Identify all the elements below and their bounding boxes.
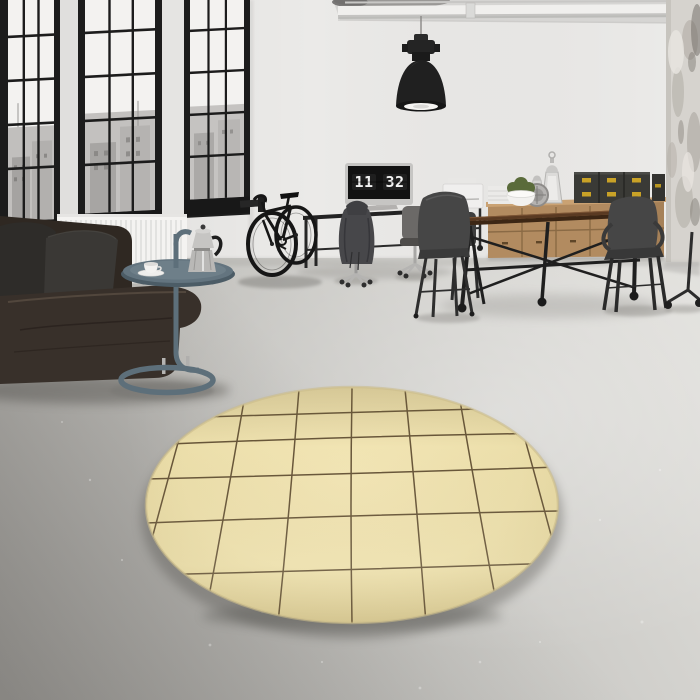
bike-shadow — [238, 276, 322, 289]
chair-back — [608, 196, 658, 252]
rack-caster — [664, 301, 672, 309]
loft-room-photo: 11 32 — [0, 0, 700, 700]
cup-rim — [144, 262, 158, 266]
caster-wheel — [428, 271, 433, 276]
caster-wheel — [362, 283, 367, 288]
window-left — [0, 0, 60, 238]
trunk-top-edge — [574, 172, 650, 175]
distressed-column — [660, 0, 700, 276]
bike-hub — [270, 242, 274, 246]
lamp-neck — [412, 52, 430, 61]
window-city-view — [190, 104, 244, 200]
lamp-bulb — [413, 105, 429, 109]
ceiling — [332, 0, 700, 24]
caster-wheel — [346, 283, 351, 288]
table-caster — [458, 304, 467, 313]
moka-knob — [201, 225, 206, 230]
moka-base — [188, 250, 216, 272]
pipe-coupler — [466, 3, 475, 18]
table-caster — [538, 298, 547, 307]
plant-pot-rim — [507, 191, 535, 198]
table-caster — [630, 292, 639, 301]
radiator-top — [57, 214, 187, 217]
chair-back — [418, 192, 470, 252]
caster-wheel — [404, 274, 409, 279]
chair-foot — [414, 314, 419, 319]
scene-canvas: 11 32 — [0, 0, 700, 700]
bike-hub — [294, 233, 298, 237]
lamp-gear-housing — [407, 40, 435, 54]
window-middle — [78, 0, 162, 232]
cart-caster — [477, 245, 483, 251]
caster-wheel — [398, 271, 403, 276]
caster-wheel — [340, 280, 345, 285]
caster-wheel — [368, 280, 373, 285]
chair-shadow — [604, 306, 672, 317]
lamp-lug — [402, 44, 408, 52]
lamp-lug — [434, 44, 440, 52]
chair-foot — [470, 312, 475, 317]
window-right — [184, 0, 250, 218]
trunk-small-latch — [655, 184, 661, 188]
